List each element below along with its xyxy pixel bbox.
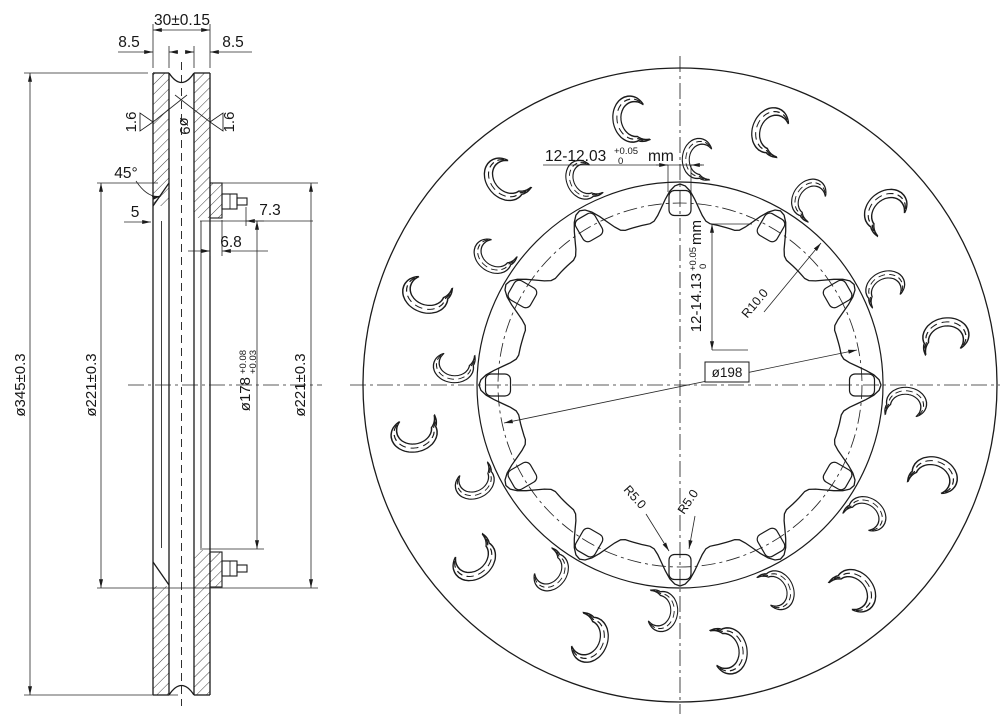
dim-corner-radius: R5.0 <box>675 487 701 517</box>
slot-hook <box>885 386 928 418</box>
dim-outer-dia: ø345±0.3 <box>12 353 29 416</box>
slot-hook <box>757 565 800 614</box>
dim-valley-radius: R5.0 <box>621 483 649 512</box>
chamfer-edge <box>153 562 169 585</box>
flange-bobbin <box>222 194 237 209</box>
slot-hook <box>828 561 884 618</box>
flange-bobbin <box>237 565 247 572</box>
slot-hook <box>451 462 500 505</box>
technical-drawing-canvas: 30±0.15 8.5 8.5 1.6 1.6 ø9 45° 5 7.3 6.8… <box>0 0 1000 728</box>
dim-bolt-circle-dia: ø198 <box>712 365 743 380</box>
bore-tol-lower: +0.03 <box>248 350 259 374</box>
dim-plate-left: 8.5 <box>118 34 140 51</box>
dim-inner-dia-left: ø221±0.3 <box>83 353 100 416</box>
dim-lobe-radius: R10.0 <box>739 286 771 321</box>
slot-hook <box>856 181 913 237</box>
drive-hole-height-unit: mm <box>688 220 705 245</box>
dim-plate-right: 8.5 <box>222 34 244 51</box>
slot-hook <box>681 137 713 180</box>
drive-hole <box>506 278 539 310</box>
dim-stud-length: 7.3 <box>259 202 281 219</box>
dim-inner-dia-right: ø221±0.3 <box>292 353 309 416</box>
front-labels: 12-12.03 +0.05 0 mm 12-14.13 +0.05 0 mm … <box>545 146 771 517</box>
front-view <box>350 56 1000 714</box>
plate-hatch <box>194 73 210 218</box>
slot-hook <box>647 590 679 633</box>
bolt-circle-dia-line <box>504 350 857 423</box>
dim-bore-dia: ø178 +0.08 +0.03 <box>237 350 259 411</box>
corner-radius-leader <box>689 516 695 549</box>
lobe-radius-leader <box>764 243 821 312</box>
plate-hatch <box>194 550 210 695</box>
dim-drive-hole-height: 12-14.13 +0.05 0 mm <box>688 220 709 332</box>
drive-hole-width-unit: mm <box>648 148 674 165</box>
plate-hatch <box>153 586 169 695</box>
slot-hook <box>745 102 792 158</box>
slot-hook <box>860 265 909 308</box>
valley-radius-leader <box>646 514 669 551</box>
flange-bobbin <box>237 198 247 205</box>
drive-hole-height-tol-lower: 0 <box>698 264 709 269</box>
roughness-value-right: 1.6 <box>221 112 238 133</box>
dim-drive-hole-width: 12-12.03 <box>545 148 606 165</box>
drive-hole-height-value: 12-14.13 <box>688 273 705 332</box>
drive-hole <box>755 526 787 559</box>
slot-hook <box>432 352 475 384</box>
drive-hole <box>821 278 854 310</box>
slot-hook <box>447 533 504 589</box>
dim-vane-pin: ø9 <box>176 117 193 135</box>
drive-hole-width-tol-lower: 0 <box>618 156 623 167</box>
roughness-value-left: 1.6 <box>123 112 140 133</box>
flange-hatch <box>210 183 222 218</box>
flange-bobbin <box>222 561 237 576</box>
brake-disc-drawing: 30±0.15 8.5 8.5 1.6 1.6 ø9 45° 5 7.3 6.8… <box>0 0 1000 728</box>
flange-hatch <box>210 552 222 587</box>
slot-hook <box>907 450 963 497</box>
roughness-symbol-left <box>140 113 153 131</box>
section-view <box>24 24 322 706</box>
slot-hook <box>568 612 615 668</box>
dim-chamfer-angle: 45° <box>114 165 137 182</box>
slot-hook <box>476 152 532 209</box>
dim-flange-thickness: 6.8 <box>220 234 242 251</box>
dim-offset: 5 <box>131 204 140 221</box>
dim-overall-width: 30±0.15 <box>154 12 210 29</box>
bore-dia-value: ø178 <box>237 377 254 411</box>
slot-hook <box>397 273 453 320</box>
